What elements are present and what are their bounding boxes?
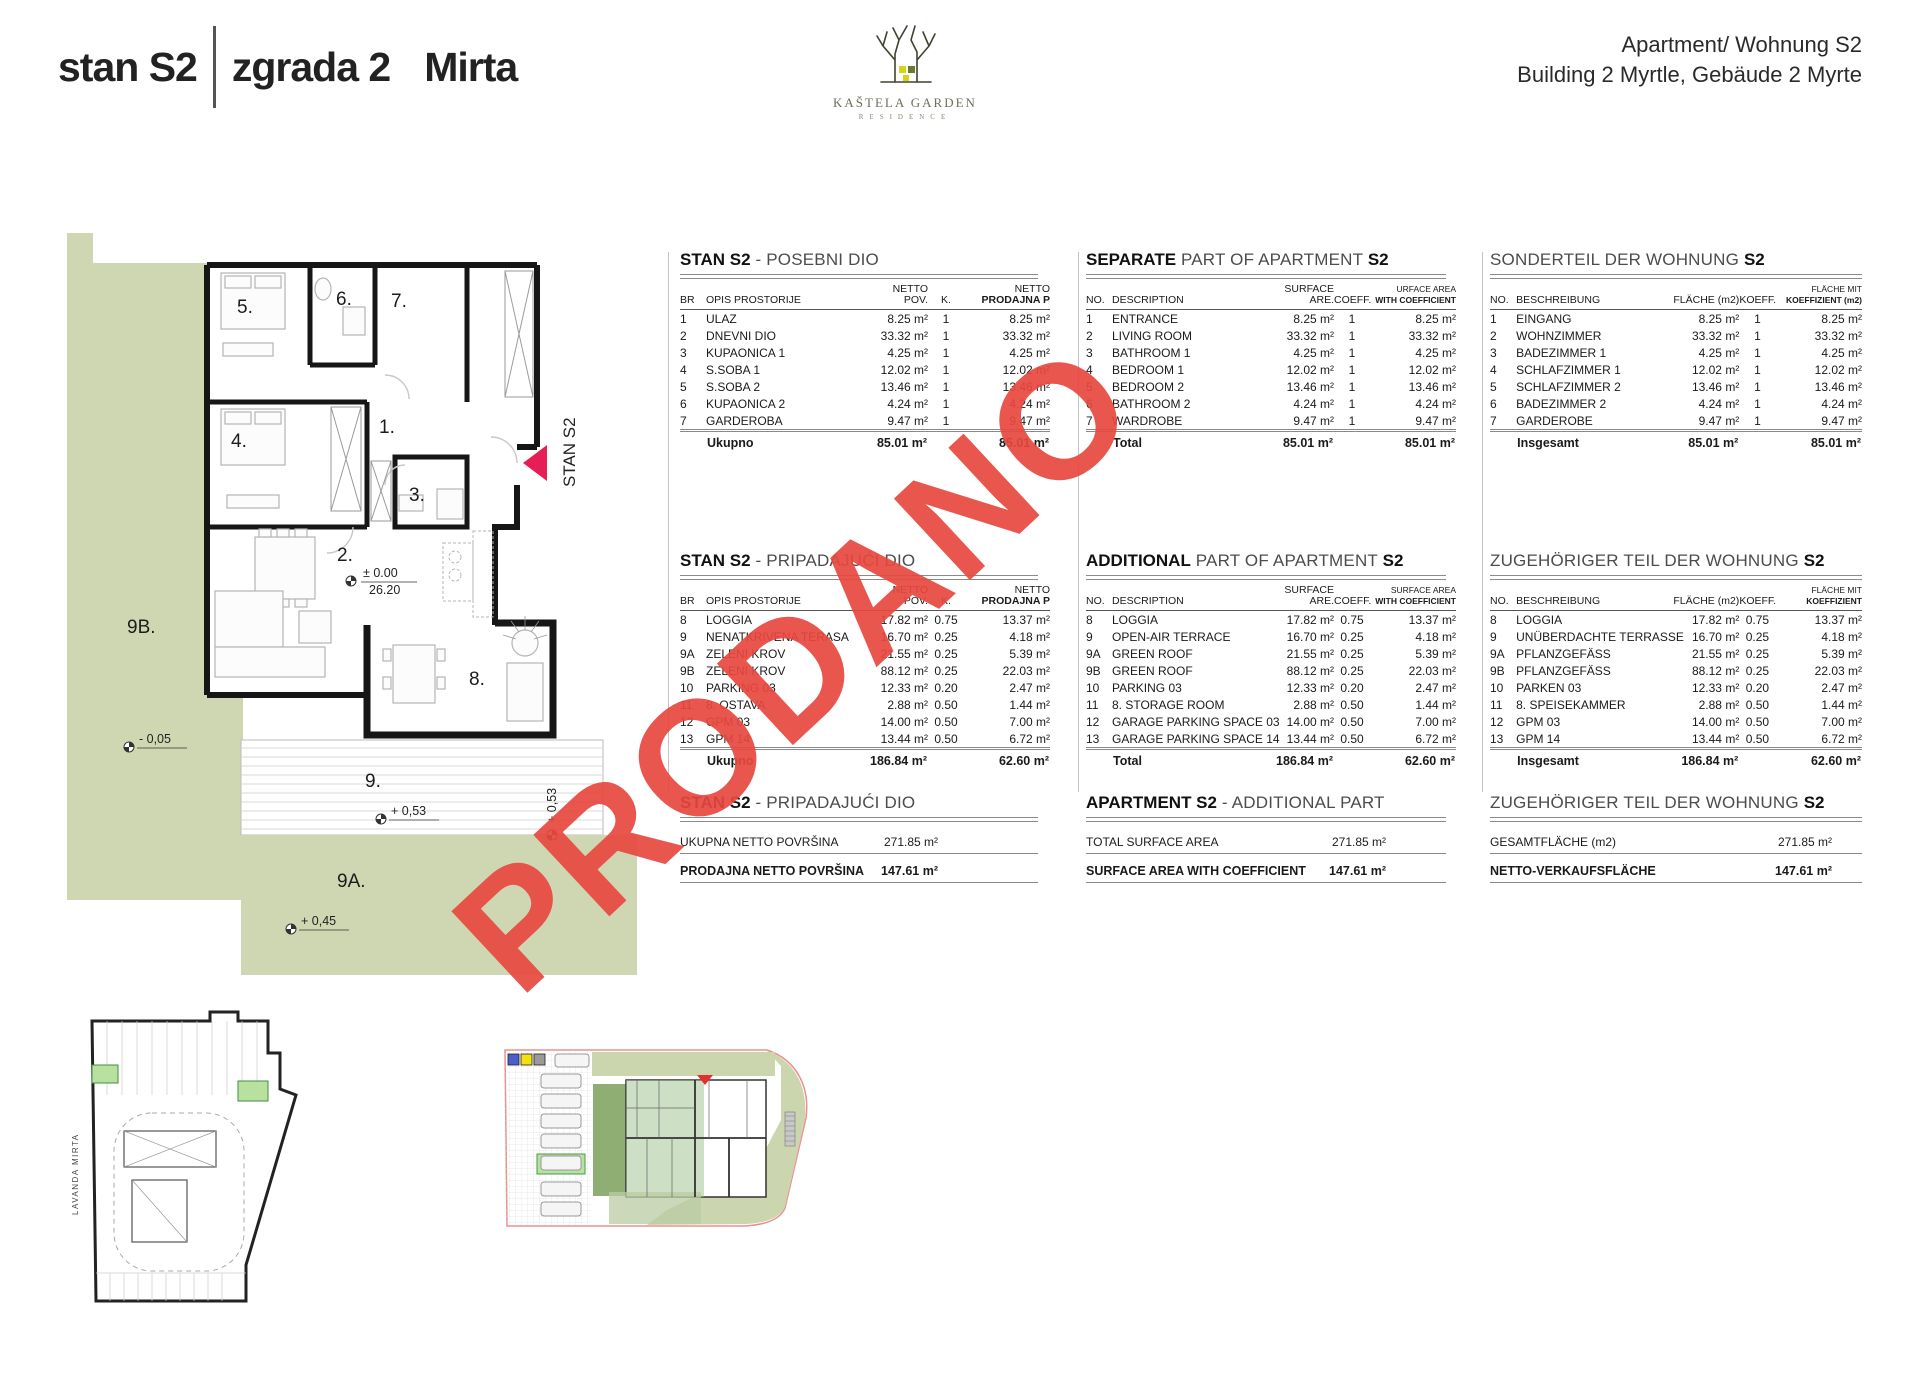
table-total-row: Total 186.84 m² 62.60 m²: [1086, 749, 1456, 770]
table-row: 13GARAGE PARKING SPACE 14 13.44 m²0.50 6…: [1086, 730, 1456, 749]
table-row: 4BEDROOM 1 12.02 m²1 12.02 m²: [1086, 361, 1456, 378]
table-row: 1ULAZ 8.25 m²1 8.25 m²: [680, 310, 1050, 328]
table-row: 9APFLANZGEFÄSS 21.55 m²0.25 5.39 m²: [1490, 645, 1862, 662]
summary-total-row: TOTAL SURFACE AREA 271.85 m²: [1086, 825, 1446, 854]
summary-total-row: GESAMTFLÄCHE (m2) 271.85 m²: [1490, 825, 1862, 854]
column-german: SONDERTEIL DER WOHNUNG S2 NO. BESCHREIBU…: [1490, 250, 1862, 883]
room-label-9b: 9B.: [127, 617, 156, 638]
table-total-row: Insgesamt 85.01 m² 85.01 m²: [1490, 431, 1862, 452]
kastela-garden-logo: KAŠTELA GARDEN RESIDENCE: [815, 16, 995, 121]
table-row: 1ENTRANCE 8.25 m²1 8.25 m²: [1086, 310, 1456, 328]
summary-sale-row: SURFACE AREA WITH COEFFICIENT 147.61 m²: [1086, 854, 1446, 883]
logo-text: KAŠTELA GARDEN: [815, 95, 995, 111]
summary-block-en: APARTMENT S2 - ADDITIONAL PART TOTAL SUR…: [1086, 793, 1446, 883]
summary-title: ZUGEHÖRIGER TEIL DER WOHNUNG S2: [1490, 793, 1862, 813]
table-header-row: NO. DESCRIPTION SURFACEARE. COEFF. SURFA…: [1086, 583, 1456, 611]
table-additional-part-en: ADDITIONAL PART OF APARTMENT S2 NO. DESC…: [1086, 551, 1446, 769]
table-additional-part-de: ZUGEHÖRIGER TEIL DER WOHNUNG S2 NO. BESC…: [1490, 551, 1862, 769]
table-row: 9OPEN-AIR TERRACE 16.70 m²0.25 4.18 m²: [1086, 628, 1456, 645]
room-label-4: 4.: [231, 431, 247, 452]
room-label-9a: 9A.: [337, 871, 366, 892]
legend-gray-swatch: [534, 1054, 545, 1065]
title-rule: [1086, 575, 1446, 580]
table-row: 10PARKING 03 12.33 m²0.20 2.47 m²: [1086, 679, 1456, 696]
table-row: 1EINGANG 8.25 m²1 8.25 m²: [1490, 310, 1862, 328]
tree-logo-icon: [869, 16, 941, 88]
table-row: 2DNEVNI DIO 33.32 m²1 33.32 m²: [680, 327, 1050, 344]
unit-entrance-label: STAN S2: [560, 417, 579, 487]
table-row: 118. STORAGE ROOM 2.88 m²0.50 1.44 m²: [1086, 696, 1456, 713]
title-rule: [1490, 575, 1862, 580]
title-rule: [680, 274, 1038, 279]
unit-title: stan S2: [58, 44, 197, 91]
legend-blue-swatch: [508, 1054, 519, 1065]
level-plus045: + 0,45: [301, 914, 336, 928]
green-strip: [593, 1084, 626, 1196]
table-row: 8LOGGIA 17.82 m²0.75 13.37 m²: [1086, 611, 1456, 629]
table-row: 6BADEZIMMER 2 4.24 m²1 4.24 m²: [1490, 395, 1862, 412]
title-rule: [1086, 274, 1446, 279]
garage-level-plan: LAVANDA MIRTA: [62, 1005, 302, 1305]
street-label: LAVANDA MIRTA: [71, 1133, 80, 1215]
table-title: SEPARATE PART OF APARTMENT S2: [1086, 250, 1446, 270]
title-divider: [213, 26, 216, 108]
table-row: 2WOHNZIMMER 33.32 m²1 33.32 m²: [1490, 327, 1862, 344]
table-header-row: NO. BESCHREIBUNG FLÄCHE (m2) KOEFF. FLÄC…: [1490, 282, 1862, 310]
summary-title: APARTMENT S2 - ADDITIONAL PART: [1086, 793, 1446, 813]
room-label-5: 5.: [237, 297, 253, 318]
room-label-9: 9.: [365, 771, 381, 792]
site-plan-legend: [508, 1054, 545, 1065]
room-label-3: 3.: [409, 485, 425, 506]
table-title: ZUGEHÖRIGER TEIL DER WOHNUNG S2: [1490, 551, 1862, 571]
column-english: SEPARATE PART OF APARTMENT S2 NO. DESCRI…: [1086, 250, 1446, 883]
room-label-7: 7.: [391, 291, 407, 312]
room-label-1: 1.: [379, 417, 395, 438]
room-label-6: 6.: [336, 289, 352, 310]
summary-sale-row: NETTO-VERKAUFSFLÄCHE 147.61 m²: [1490, 854, 1862, 883]
table-separate-part-de: SONDERTEIL DER WOHNUNG S2 NO. BESCHREIBU…: [1490, 250, 1862, 451]
table-row: 3BADEZIMMER 1 4.25 m²1 4.25 m²: [1490, 344, 1862, 361]
header-right-line2: Building 2 Myrtle, Gebäude 2 Myrte: [1517, 60, 1862, 90]
table-title: ADDITIONAL PART OF APARTMENT S2: [1086, 551, 1446, 571]
legend-yellow-swatch: [521, 1054, 532, 1065]
building-name: Mirta: [424, 44, 517, 91]
table-row: 9UNÜBERDACHTE TERRASSE 16.70 m²0.25 4.18…: [1490, 628, 1862, 645]
table-header-row: BR OPIS PROSTORIJE NETTOPOV. K. NETTOPRO…: [680, 282, 1050, 310]
table-row: 118. SPEISEKAMMER 2.88 m²0.50 1.44 m²: [1490, 696, 1862, 713]
level-zero: ± 0.00: [363, 566, 398, 580]
table-row: 7GARDEROBE 9.47 m²1 9.47 m²: [1490, 412, 1862, 431]
table-row: 12GPM 03 14.00 m²0.50 7.00 m²: [1490, 713, 1862, 730]
building-title: zgrada 2: [232, 44, 390, 91]
column-divider: [1482, 252, 1483, 792]
title-rule: [1490, 274, 1862, 279]
table-header-row: NO. BESCHREIBUNG FLÄCHE (m2) KOEFF. FLÄC…: [1490, 583, 1862, 611]
table-title: STAN S2 - POSEBNI DIO: [680, 250, 1038, 270]
title-rule: [1490, 817, 1862, 822]
table-row: 8LOGGIA 17.82 m²0.75 13.37 m²: [1490, 611, 1862, 629]
table-total-row: Insgesamt 186.84 m² 62.60 m²: [1490, 749, 1862, 770]
table-row: 12GARAGE PARKING SPACE 03 14.00 m²0.50 7…: [1086, 713, 1456, 730]
logo-subtext: RESIDENCE: [815, 113, 995, 121]
table-row: 3BATHROOM 1 4.25 m²1 4.25 m²: [1086, 344, 1456, 361]
level-plus053: + 0,53: [391, 804, 426, 818]
table-title: SONDERTEIL DER WOHNUNG S2: [1490, 250, 1862, 270]
level-abs: 26.20: [369, 583, 400, 597]
site-plan: [497, 1042, 819, 1242]
table-row: 9BPFLANZGEFÄSS 88.12 m²0.25 22.03 m²: [1490, 662, 1862, 679]
header-left: stan S2 zgrada 2 Mirta: [58, 26, 517, 108]
table-row: 6BATHROOM 2 4.24 m²1 4.24 m²: [1086, 395, 1456, 412]
table-row: 10PARKEN 03 12.33 m²0.20 2.47 m²: [1490, 679, 1862, 696]
table-row: 2LIVING ROOM 33.32 m²1 33.32 m²: [1086, 327, 1456, 344]
table-row: 9BGREEN ROOF 88.12 m²0.25 22.03 m²: [1086, 662, 1456, 679]
table-row: 4SCHLAFZIMMER 1 12.02 m²1 12.02 m²: [1490, 361, 1862, 378]
highlighted-storage: [92, 1065, 118, 1083]
table-header-row: NO. DESCRIPTION SURFACEARE. COEFF. URFAC…: [1086, 282, 1456, 310]
level-minus05: - 0,05: [139, 732, 171, 746]
summary-block-de: ZUGEHÖRIGER TEIL DER WOHNUNG S2 GESAMTFL…: [1490, 793, 1862, 883]
header-right-line1: Apartment/ Wohnung S2: [1517, 30, 1862, 60]
title-rule: [1086, 817, 1446, 822]
table-row: 5BEDROOM 2 13.46 m²1 13.46 m²: [1086, 378, 1456, 395]
summary-sale-row: PRODAJNA NETTO POVRŠINA 147.61 m²: [680, 854, 1038, 883]
table-row: 5SCHLAFZIMMER 2 13.46 m²1 13.46 m²: [1490, 378, 1862, 395]
header-right: Apartment/ Wohnung S2 Building 2 Myrtle,…: [1517, 30, 1862, 90]
highlighted-parking: [238, 1081, 268, 1101]
room-label-8: 8.: [469, 669, 485, 690]
table-row: 13GPM 14 13.44 m²0.50 6.72 m²: [1490, 730, 1862, 749]
table-row: 9AGREEN ROOF 21.55 m²0.25 5.39 m²: [1086, 645, 1456, 662]
room-label-2: 2.: [337, 545, 353, 566]
